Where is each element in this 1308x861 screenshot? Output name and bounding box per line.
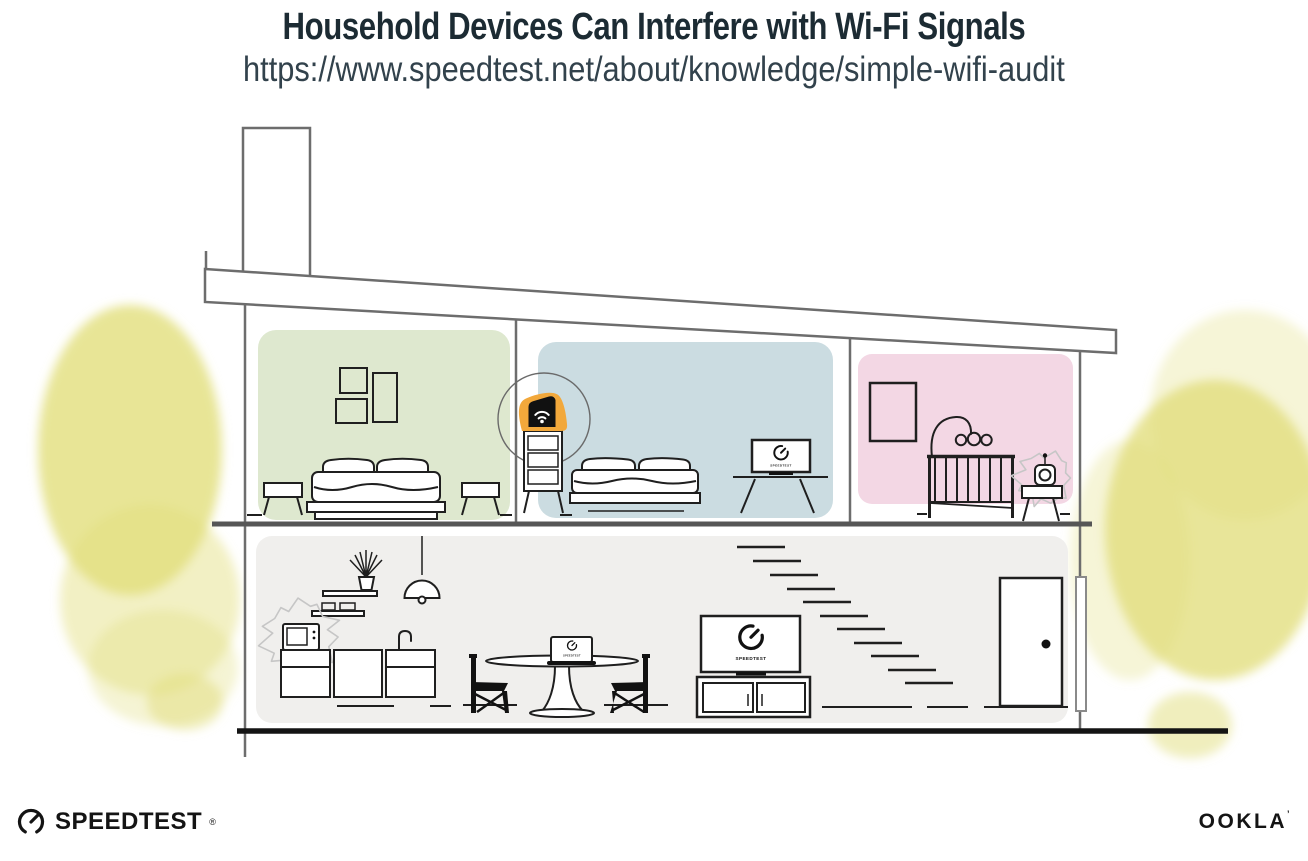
speedtest-wordmark: SPEEDTEST — [55, 808, 202, 836]
front-door — [1000, 578, 1062, 706]
left-tree — [38, 305, 240, 730]
living-room-tv: SPEEDTEST — [701, 616, 800, 676]
house-illustration: SPEEDTEST — [0, 0, 1308, 861]
tv-console — [697, 677, 810, 717]
speedtest-gauge-icon — [14, 805, 48, 839]
downspout — [1076, 577, 1086, 711]
ookla-logo: OOKLA’ — [1199, 810, 1292, 834]
footer: SPEEDTEST® OOKLA’ — [14, 805, 1292, 839]
svg-text:SPEEDTEST: SPEEDTEST — [563, 655, 581, 658]
svg-text:SPEEDTEST: SPEEDTEST — [770, 464, 791, 468]
bed — [570, 458, 700, 503]
svg-text:SPEEDTEST: SPEEDTEST — [736, 656, 767, 661]
ookla-wordmark: OOKLA — [1199, 810, 1287, 833]
wifi-router — [519, 393, 567, 431]
speedtest-logo: SPEEDTEST® — [14, 805, 216, 839]
doorknob — [1042, 640, 1051, 649]
trademark-symbol: ® — [209, 818, 216, 827]
right-tree — [1070, 310, 1308, 758]
trademark-symbol: ’ — [1287, 809, 1292, 819]
chimney — [243, 128, 310, 288]
microwave — [283, 624, 319, 650]
bed — [307, 459, 445, 519]
infographic-page: Household Devices Can Interfere with Wi-… — [0, 0, 1308, 861]
laptop: SPEEDTEST — [547, 637, 596, 665]
